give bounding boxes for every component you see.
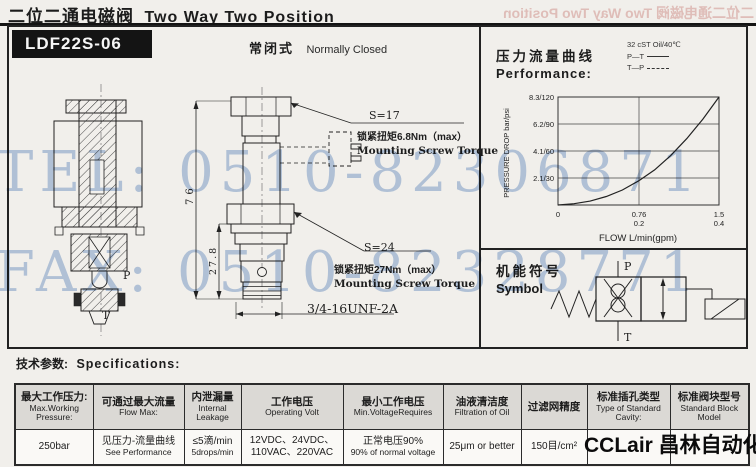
- spec-value-2: ≤5滴/min5drops/min: [184, 430, 241, 466]
- spec-header-2: 内泄漏量Internal Leakage: [184, 384, 241, 430]
- specs-header-row: 最大工作压力:Max.Working Pressure: 可通过最大流量Flow…: [15, 384, 749, 430]
- symbol-port-t: T: [624, 331, 632, 344]
- spec-header-7: 标准插孔类型Type of Standard Cavity:: [587, 384, 670, 430]
- port-t-label: T: [102, 309, 109, 322]
- spec-header-0: 最大工作压力:Max.Working Pressure:: [15, 384, 93, 430]
- x-tick-mid-gpm: 0.2: [634, 219, 644, 228]
- spec-value-3: 12VDC、24VDC、110VAC、220VAC: [241, 430, 343, 466]
- mode-label-zh: 常闭式: [249, 41, 294, 56]
- dim-s24-label: S=24: [364, 241, 395, 254]
- performance-title-zh: 压力流量曲线: [496, 49, 595, 66]
- torque-top-en: Mounting Screw Torque: [357, 145, 498, 157]
- thread-spec-label: 3/4-16UNF-2A: [307, 301, 398, 316]
- valve-mode-label: 常闭式 Normally Closed: [249, 38, 387, 58]
- spec-header-8: 标准阀块型号Standard Block Model: [670, 384, 749, 430]
- bleedthrough-ghost-title: 二位二通电磁阀 Two Way Two Position: [503, 3, 754, 23]
- company-logo: CCLair 昌林自动化3*: [584, 429, 756, 459]
- y-tick-1: 2.1/30: [533, 174, 554, 183]
- dim-s17-label: S=17: [369, 109, 400, 122]
- company-logo-text: CCLair 昌林自动化: [584, 434, 756, 457]
- x-tick-max-gpm: 0.4: [714, 219, 724, 228]
- spec-value-5: 25μm or better: [443, 430, 521, 466]
- dim-27-8-label: 27.8: [208, 246, 219, 275]
- x-axis-label: FLOW L/min(gpm): [599, 233, 677, 244]
- torque-bottom-zh: 锁紧扭矩27Nm（max）: [334, 261, 441, 276]
- column-divider: [479, 27, 481, 347]
- torque-top-zh: 锁紧扭矩6.8Nm（max）: [357, 128, 467, 143]
- x-tick-0: 0: [556, 210, 560, 219]
- spec-header-5: 油液清洁度Filtration of Oil: [443, 384, 521, 430]
- spec-value-4: 正常电压90%90% of normal voltage: [343, 430, 443, 466]
- x-tick-mid-lmin: 0.76: [632, 210, 647, 219]
- y-axis-label: PRESSURE DROP bar/psi: [502, 108, 511, 198]
- valve-cross-section-drawing: [29, 84, 189, 342]
- torque-bottom-en: Mounting Screw Torque: [334, 278, 475, 290]
- specs-heading: 技术参数: Specifications:: [16, 355, 180, 373]
- port-p-label: P: [123, 269, 130, 282]
- symbol-port-p: P: [624, 260, 632, 273]
- spec-header-1: 可通过最大流量Flow Max:: [93, 384, 184, 430]
- hydraulic-symbol-drawing: P T: [537, 259, 749, 347]
- model-badge: LDF22S-06: [12, 30, 152, 58]
- spec-value-1: 见压力-流量曲线See Performance: [93, 430, 184, 466]
- solid-line-sample: [647, 56, 669, 57]
- legend-oil: 32 cST Oil/40℃: [627, 39, 681, 51]
- spec-header-3: 工作电压Operating Volt: [241, 384, 343, 430]
- specs-heading-zh: 技术参数:: [16, 357, 68, 371]
- y-tick-3: 6.2/90: [533, 120, 554, 129]
- pressure-flow-chart: 8.3/120 6.2/90 4.1/60 2.1/30 PRESSURE DR…: [483, 65, 745, 250]
- y-tick-4: 8.3/120: [529, 93, 554, 102]
- dim-76-label: 76: [185, 184, 196, 205]
- mode-label-en: Normally Closed: [306, 44, 387, 56]
- content-frame: LDF22S-06 常闭式 Normally Closed: [7, 25, 748, 349]
- spec-header-4: 最小工作电压Min.VoltageRequires: [343, 384, 443, 430]
- valve-outline-drawing: [179, 59, 479, 339]
- spec-value-6: 150目/cm²: [521, 430, 587, 466]
- y-tick-2: 4.1/60: [533, 147, 554, 156]
- spec-value-0: 250bar: [15, 430, 93, 466]
- x-tick-max-lmin: 1.5: [714, 210, 724, 219]
- datasheet-page: 二位二通电磁阀 Two Way Two Position 二位二通电磁阀 Two…: [0, 0, 756, 467]
- spec-header-6: 过滤网精度: [521, 384, 587, 430]
- specs-heading-en: Specifications:: [76, 357, 180, 371]
- legend-pt: P—T: [627, 51, 681, 63]
